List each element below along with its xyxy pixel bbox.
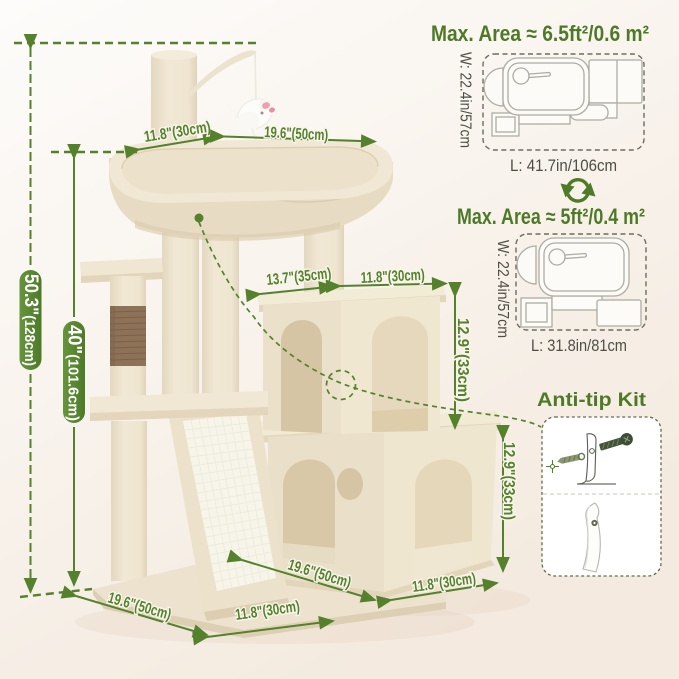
svg-text:12.9"(33cm): 12.9"(33cm) [500, 442, 517, 520]
svg-text:19.6"(50cm): 19.6"(50cm) [264, 124, 329, 144]
svg-text:W: 22.4in/57cm: W: 22.4in/57cm [457, 52, 474, 148]
svg-text:L: 31.8in/81cm: L: 31.8in/81cm [531, 336, 627, 355]
svg-text:Max. Area ≈ 5ft²/0.4 m²: Max. Area ≈ 5ft²/0.4 m² [457, 204, 645, 229]
svg-text:Anti-tip Kit: Anti-tip Kit [537, 390, 647, 411]
svg-text:40"(101.6cm): 40"(101.6cm) [64, 325, 85, 421]
svg-text:W: 22.4in/57cm: W: 22.4in/57cm [494, 240, 511, 338]
svg-text:11.8"(30cm): 11.8"(30cm) [360, 267, 425, 287]
svg-text:Max. Area ≈ 6.5ft²/0.6 m²: Max. Area ≈ 6.5ft²/0.6 m² [431, 21, 649, 46]
svg-text:50.3"(128cm): 50.3"(128cm) [20, 274, 41, 366]
svg-text:L: 41.7in/106cm: L: 41.7in/106cm [510, 156, 617, 175]
svg-text:12.9"(33cm): 12.9"(33cm) [454, 318, 471, 402]
